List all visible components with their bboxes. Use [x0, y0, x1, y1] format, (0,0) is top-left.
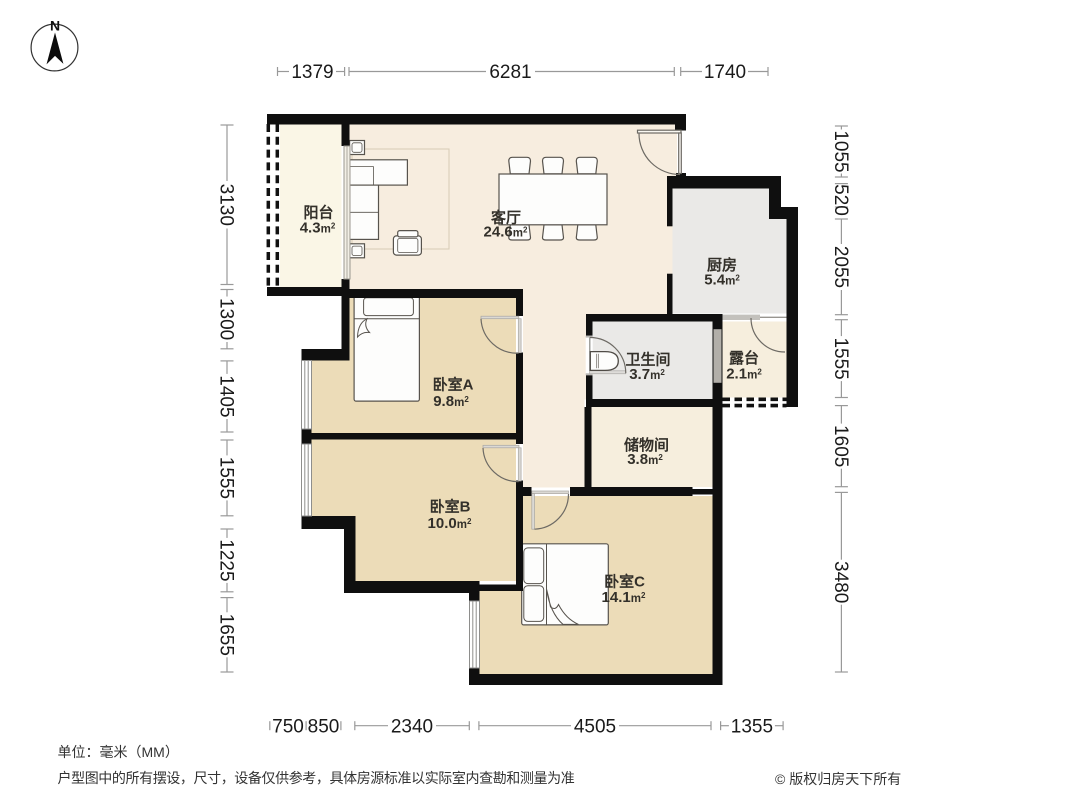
svg-text:卧室C: 卧室C [604, 572, 645, 590]
svg-text:1055: 1055 [830, 130, 851, 172]
svg-text:6281: 6281 [489, 62, 531, 83]
svg-text:露台: 露台 [729, 349, 759, 367]
svg-text:单位：毫米（MM）: 单位：毫米（MM） [58, 744, 179, 760]
svg-text:1605: 1605 [830, 425, 851, 467]
svg-text:1225: 1225 [216, 539, 237, 581]
svg-text:N: N [50, 18, 60, 34]
svg-text:3.8m2: 3.8m2 [627, 451, 663, 468]
svg-text:2.1m2: 2.1m2 [726, 365, 762, 382]
svg-text:520: 520 [830, 184, 851, 216]
svg-text:3480: 3480 [830, 561, 851, 603]
svg-text:750: 750 [272, 716, 304, 737]
svg-text:1379: 1379 [291, 62, 333, 83]
svg-text:2340: 2340 [391, 716, 433, 737]
svg-text:1740: 1740 [704, 62, 746, 83]
svg-text:3.7m2: 3.7m2 [629, 366, 665, 383]
svg-text:2055: 2055 [830, 246, 851, 288]
svg-text:卧室A: 卧室A [433, 375, 474, 393]
svg-text:9.8m2: 9.8m2 [433, 393, 469, 410]
svg-text:© 版权归房天下所有: © 版权归房天下所有 [775, 771, 901, 787]
svg-text:卧室B: 卧室B [430, 497, 471, 515]
svg-text:1300: 1300 [216, 298, 237, 340]
svg-text:4505: 4505 [574, 716, 616, 737]
svg-text:1555: 1555 [216, 457, 237, 499]
svg-text:1355: 1355 [731, 716, 773, 737]
svg-text:3130: 3130 [216, 184, 237, 226]
svg-text:1405: 1405 [216, 375, 237, 417]
svg-text:户型图中的所有摆设，尺寸，设备仅供参考，具体房源标准以实际室: 户型图中的所有摆设，尺寸，设备仅供参考，具体房源标准以实际室内查勘和测量为准 [58, 770, 575, 786]
svg-text:1555: 1555 [830, 337, 851, 379]
svg-text:1655: 1655 [216, 614, 237, 656]
svg-text:4.3m2: 4.3m2 [300, 219, 336, 236]
svg-text:5.4m2: 5.4m2 [704, 271, 740, 288]
svg-text:850: 850 [308, 716, 340, 737]
